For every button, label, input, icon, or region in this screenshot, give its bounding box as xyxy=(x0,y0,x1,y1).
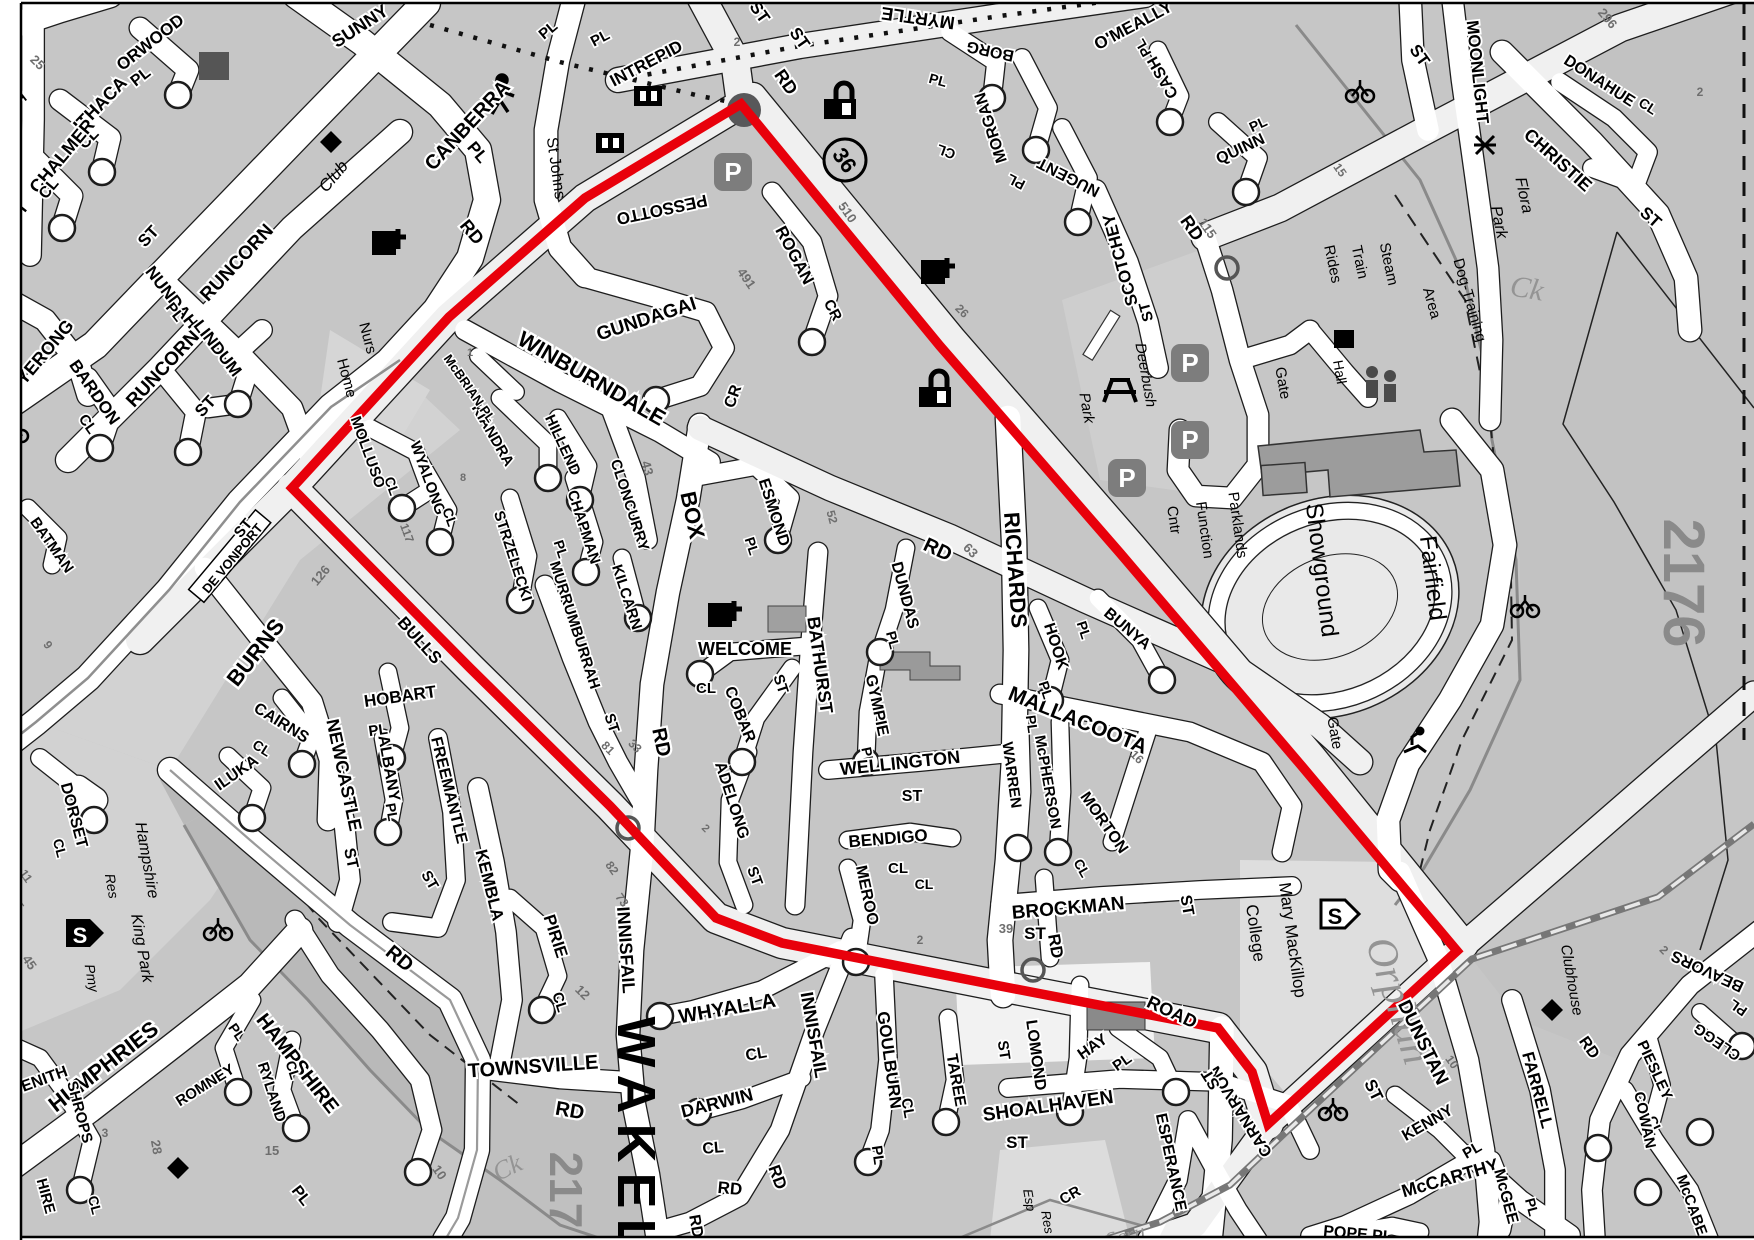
svg-text:PL: PL xyxy=(383,802,402,823)
svg-text:8: 8 xyxy=(460,472,466,484)
svg-text:PL: PL xyxy=(1023,714,1041,734)
svg-text:P: P xyxy=(724,157,741,187)
svg-text:ST: ST xyxy=(994,1039,1014,1060)
svg-text:217: 217 xyxy=(540,1152,592,1229)
svg-text:WELCOME: WELCOME xyxy=(698,639,792,659)
svg-text:28: 28 xyxy=(148,1139,165,1156)
svg-text:CL: CL xyxy=(702,1139,725,1158)
svg-text:ST: ST xyxy=(1006,1133,1028,1152)
svg-text:2176: 2176 xyxy=(1651,518,1716,647)
svg-text:2: 2 xyxy=(917,933,924,947)
svg-text:CL: CL xyxy=(897,1097,917,1120)
svg-text:P: P xyxy=(1181,425,1198,455)
svg-text:1: 1 xyxy=(467,347,473,359)
svg-text:S: S xyxy=(73,923,88,948)
svg-text:P: P xyxy=(1118,463,1135,493)
svg-text:Ck: Ck xyxy=(1508,269,1547,307)
svg-text:ST: ST xyxy=(1176,894,1196,917)
svg-text:PL: PL xyxy=(868,1144,888,1165)
svg-text:CL: CL xyxy=(696,680,716,697)
svg-text:CL: CL xyxy=(915,876,934,892)
svg-text:P: P xyxy=(1181,348,1198,378)
svg-text:S: S xyxy=(1328,904,1343,929)
svg-text:ST: ST xyxy=(1024,924,1046,943)
svg-text:2: 2 xyxy=(734,35,741,49)
svg-text:15: 15 xyxy=(265,1143,279,1158)
svg-text:2: 2 xyxy=(1697,85,1704,99)
svg-text:CL: CL xyxy=(888,860,908,877)
svg-text:39: 39 xyxy=(999,921,1013,936)
svg-text:RD: RD xyxy=(717,1178,743,1199)
svg-text:3: 3 xyxy=(102,1126,109,1140)
svg-text:ST: ST xyxy=(902,788,923,805)
svg-text:WAKELE: WAKELE xyxy=(606,1016,666,1240)
